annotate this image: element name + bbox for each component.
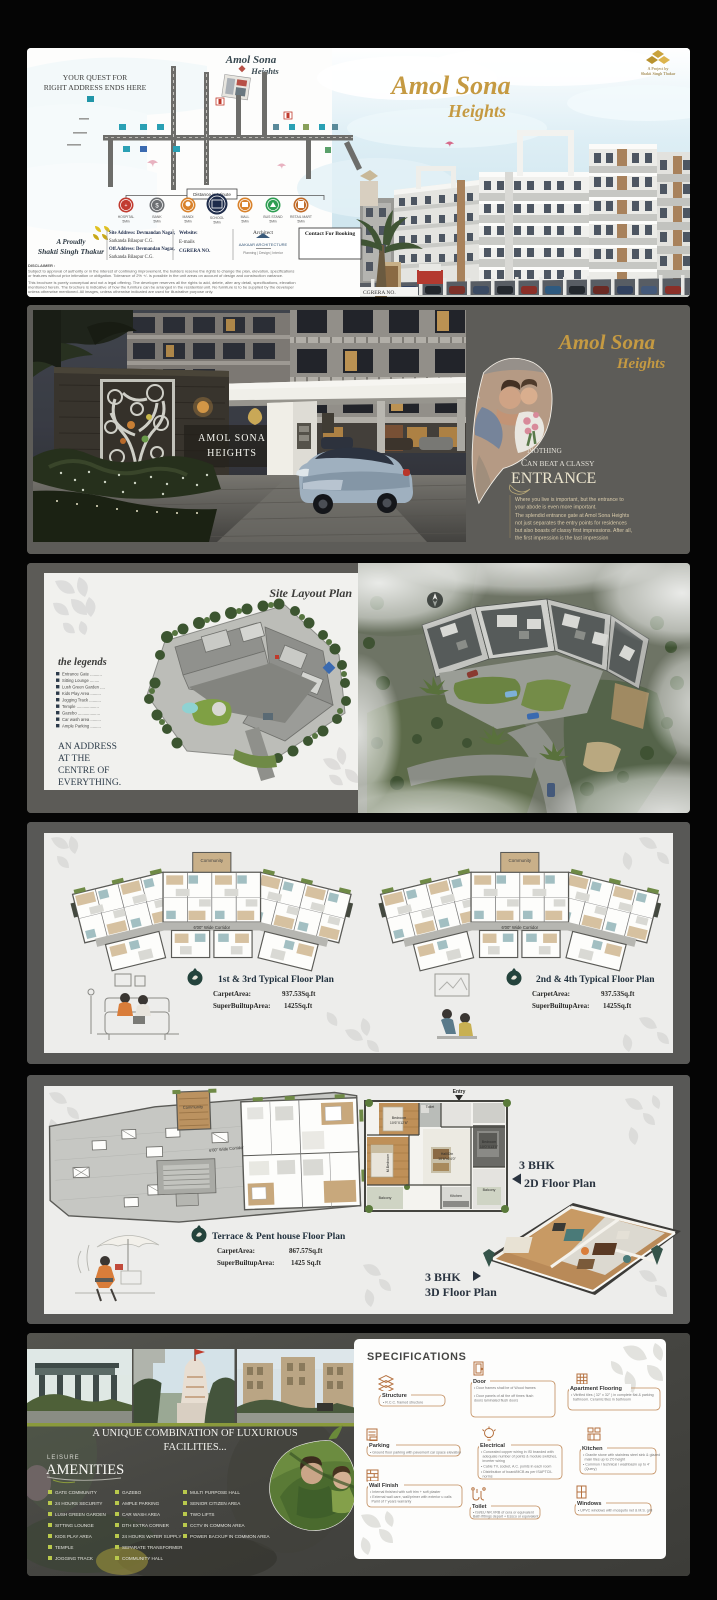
- svg-text:inverter wiring: inverter wiring: [483, 1459, 505, 1463]
- svg-text:LUSH GREEN GARDEN: LUSH GREEN GARDEN: [55, 1512, 106, 1517]
- svg-text:10'0"X13'0": 10'0"X13'0": [480, 1145, 499, 1149]
- svg-text:DTH EXTRA CORNER: DTH EXTRA CORNER: [122, 1523, 170, 1528]
- svg-text:Kitchen: Kitchen: [450, 1194, 462, 1198]
- svg-text:Sitting Lounge ........: Sitting Lounge ........: [62, 678, 99, 683]
- svg-text:• Ground floor parking with pa: • Ground floor parking with pavement car…: [370, 1451, 461, 1455]
- svg-text:Kids Play Area .........: Kids Play Area .........: [62, 691, 101, 696]
- svg-text:• R.C.C. framed structure: • R.C.C. framed structure: [383, 1401, 423, 1405]
- svg-text:24 HOURS WATER SUPPLY: 24 HOURS WATER SUPPLY: [122, 1534, 181, 1539]
- svg-text:5Min: 5Min: [297, 220, 304, 224]
- svg-text:SuperBuiltupArea:: SuperBuiltupArea:: [213, 1002, 270, 1010]
- svg-text:POWER BACKUP IN COMMON AREA: POWER BACKUP IN COMMON AREA: [190, 1534, 270, 1539]
- svg-text:• Concealed copper wiring in: • Concealed copper wiring in ISI branded…: [481, 1450, 554, 1454]
- svg-text:2D Floor Plan: 2D Floor Plan: [524, 1176, 596, 1190]
- svg-text:3 BHK: 3 BHK: [425, 1270, 461, 1284]
- svg-text:5Min: 5Min: [153, 220, 160, 224]
- svg-text:main tiles up to 2'0 height: main tiles up to 2'0 height: [585, 1458, 626, 1462]
- svg-text:(Query): (Query): [585, 1467, 597, 1471]
- svg-text:your abode is even more import: your abode is even more important.: [515, 505, 597, 511]
- svg-text:937.53Sq.ft: 937.53Sq.ft: [601, 990, 635, 998]
- svg-text:adequate number of points & mo: adequate number of points & module switc…: [483, 1455, 558, 1459]
- svg-text:10'6"x24'0": 10'6"x24'0": [438, 1157, 456, 1161]
- svg-text:Site Address: Devmandan Nagar,: Site Address: Devmandan Nagar,: [109, 231, 175, 236]
- svg-text:Car wash area .........: Car wash area .........: [62, 717, 101, 722]
- svg-text:MALL: MALL: [241, 215, 250, 219]
- svg-text:Sarkanda Bilaspur C.G.: Sarkanda Bilaspur C.G.: [109, 239, 154, 244]
- svg-text:FACILITIES...: FACILITIES...: [163, 1442, 226, 1453]
- svg-text:COMMUNITY HALL: COMMUNITY HALL: [122, 1556, 163, 1561]
- svg-text:but also boasts of classy firs: but also boasts of classy first impressi…: [515, 528, 632, 534]
- svg-text:Sarkanda Bilaspur C.G.: Sarkanda Bilaspur C.G.: [109, 255, 154, 260]
- svg-text:Site Layout Plan: Site Layout Plan: [269, 586, 352, 600]
- svg-text:3 BHK: 3 BHK: [519, 1158, 555, 1172]
- svg-text:• Door frames shall be of Wood: • Door frames shall be of Wood frames: [474, 1386, 536, 1390]
- svg-text:Entrance Gate ..........: Entrance Gate ..........: [62, 672, 102, 677]
- svg-text:AMOL SONA: AMOL SONA: [198, 433, 266, 444]
- svg-text:1st & 3rd Typical Floor Plan: 1st & 3rd Typical Floor Plan: [218, 975, 335, 985]
- svg-text:unless otherwise mentioned. Al: unless otherwise mentioned. All images, …: [28, 289, 213, 294]
- svg-text:Electrical: Electrical: [480, 1443, 505, 1449]
- svg-text:Temple ...................: Temple ...................: [62, 704, 99, 709]
- svg-text:Amol Sona: Amol Sona: [557, 330, 655, 354]
- svg-text:NOTHING: NOTHING: [527, 445, 562, 455]
- svg-text:2nd & 4th Typical Floor Plan: 2nd & 4th Typical Floor Plan: [536, 975, 655, 985]
- svg-text:• Distribution of board/MCB as: • Distribution of board/MCB as per ISAPT…: [481, 1470, 552, 1474]
- svg-text:Wall Finish: Wall Finish: [369, 1483, 399, 1489]
- svg-text:the legends: the legends: [58, 657, 107, 668]
- svg-text:Apartment Flooring: Apartment Flooring: [570, 1386, 622, 1392]
- svg-text:TWO LIFTS: TWO LIFTS: [190, 1512, 215, 1517]
- svg-text:Gazebo ...................: Gazebo ...................: [62, 711, 100, 716]
- svg-text:937.53Sq.ft: 937.53Sq.ft: [282, 990, 316, 998]
- svg-text:• Cable TV, socket, A.C. poin: • Cable TV, socket, A.C. points in each …: [481, 1465, 551, 1469]
- svg-text:YOUR QUEST FOR: YOUR QUEST FOR: [63, 73, 128, 82]
- svg-text:5Min: 5Min: [122, 220, 129, 224]
- svg-text:HEIGHTS: HEIGHTS: [207, 448, 257, 459]
- svg-text:SENIOR CITIZEN AREA: SENIOR CITIZEN AREA: [190, 1501, 241, 1506]
- svg-text:Bedroom: Bedroom: [482, 1140, 497, 1144]
- svg-text:Paint of 7 years warranty: Paint of 7 years warranty: [372, 1500, 412, 1504]
- svg-text:CAN BEAT A CLASSY: CAN BEAT A CLASSY: [521, 458, 595, 468]
- svg-text:Shakti Singh Thakur: Shakti Singh Thakur: [641, 71, 676, 76]
- svg-text:Community: Community: [183, 1104, 203, 1110]
- svg-text:Jogging Track ..........: Jogging Track ..........: [62, 698, 101, 703]
- svg-text:CarpetArea:: CarpetArea:: [532, 990, 570, 998]
- svg-text:AT THE: AT THE: [58, 754, 90, 764]
- svg-text:3D Floor Plan: 3D Floor Plan: [425, 1285, 497, 1299]
- svg-text:SITTING LOUNGE: SITTING LOUNGE: [55, 1523, 94, 1528]
- svg-text:Toilet: Toilet: [426, 1105, 434, 1109]
- svg-text:RIGHT ADDRESS ENDS HERE: RIGHT ADDRESS ENDS HERE: [44, 83, 147, 92]
- svg-text:• Common / technical / washbas: • Common / technical / washbasin up to 4…: [583, 1463, 650, 1467]
- svg-text:Bath fittings depart + Essco o: Bath fittings depart + Essco or equivale…: [473, 1515, 538, 1519]
- svg-text:JOGGING TRACK: JOGGING TRACK: [55, 1556, 94, 1561]
- svg-text:norms: norms: [483, 1475, 493, 1479]
- svg-text:CAR WASH AREA: CAR WASH AREA: [122, 1512, 161, 1517]
- svg-text:the first impression is the la: the first impression is the last impress…: [515, 536, 609, 542]
- svg-text:or features without prior inti: or features without prior intimation or …: [28, 273, 283, 278]
- svg-text:• Internal finished with soft: • Internal finished with soft trim + sof…: [370, 1490, 441, 1494]
- svg-text:Contact For Booking: Contact For Booking: [305, 231, 355, 237]
- svg-text:+: +: [125, 203, 128, 209]
- svg-text:• UPVC windows with mosquito n: • UPVC windows with mosquito net & M.S. …: [578, 1509, 653, 1513]
- svg-text:bathroom. Ceramic tiles in bat: bathroom. Ceramic tiles in bathroom: [573, 1398, 631, 1402]
- svg-text:Lush Green Garden ....: Lush Green Garden ....: [62, 685, 105, 690]
- svg-text:KIDS PLAY AREA: KIDS PLAY AREA: [55, 1534, 93, 1539]
- svg-text:RETAIL MART: RETAIL MART: [290, 215, 312, 219]
- svg-text:Balcony: Balcony: [379, 1196, 392, 1200]
- svg-text:1425Sq.ft: 1425Sq.ft: [603, 1002, 632, 1010]
- svg-text:SCHOOL: SCHOOL: [210, 216, 224, 220]
- svg-text:EVERYTHING.: EVERYTHING.: [58, 778, 121, 788]
- svg-text:Shakti Singh Thakur: Shakti Singh Thakur: [38, 247, 105, 256]
- svg-text:BUS STAND: BUS STAND: [263, 215, 283, 219]
- svg-text:Amol Sona: Amol Sona: [389, 71, 510, 100]
- svg-text:CarpetArea:: CarpetArea:: [213, 990, 251, 998]
- svg-text:Structure: Structure: [382, 1393, 407, 1399]
- svg-text:CENTRE OF: CENTRE OF: [58, 766, 109, 776]
- svg-text:DISCLAIMER :: DISCLAIMER :: [28, 263, 55, 268]
- svg-text:CarpetArea:: CarpetArea:: [217, 1247, 255, 1255]
- svg-text:SPECIFICATIONS: SPECIFICATIONS: [367, 1351, 467, 1363]
- svg-text:Balcony: Balcony: [483, 1188, 496, 1192]
- svg-text:TEMPLE: TEMPLE: [55, 1545, 73, 1550]
- svg-text:24 HOURS SECURITY: 24 HOURS SECURITY: [55, 1501, 102, 1506]
- svg-text:Website:: Website:: [179, 231, 198, 236]
- svg-text:Ample Parking .........: Ample Parking .........: [62, 724, 101, 729]
- svg-text:M.Bedroom: M.Bedroom: [386, 1154, 390, 1173]
- svg-text:E-mails: E-mails: [179, 240, 195, 245]
- svg-text:Heights: Heights: [616, 356, 666, 372]
- svg-text:GAZEBO: GAZEBO: [122, 1490, 142, 1495]
- svg-text:Kitchen: Kitchen: [582, 1446, 603, 1452]
- svg-text:CCTV IN COMMON AREA: CCTV IN COMMON AREA: [190, 1523, 246, 1528]
- svg-text:AMPLE PARKING: AMPLE PARKING: [122, 1501, 160, 1506]
- svg-text:Planning | Design | Interior: Planning | Design | Interior: [243, 251, 284, 255]
- svg-text:HOSPITAL: HOSPITAL: [118, 215, 135, 219]
- svg-text:867.57Sq.ft: 867.57Sq.ft: [289, 1247, 323, 1255]
- svg-text:CGRERA NO.: CGRERA NO.: [179, 249, 211, 254]
- svg-text:CGRERA NO.: CGRERA NO.: [363, 290, 396, 296]
- svg-text:• External wall care, wall/pri: • External wall care, wall/primer with e…: [370, 1495, 452, 1499]
- svg-text:Amol Sona: Amol Sona: [225, 54, 277, 66]
- svg-text:ENTRANCE: ENTRANCE: [511, 470, 596, 487]
- svg-text:LEISURE: LEISURE: [47, 1455, 80, 1461]
- svg-text:5Min: 5Min: [241, 220, 248, 224]
- svg-text:SEPARATE TRANSFORMER: SEPARATE TRANSFORMER: [122, 1545, 183, 1550]
- svg-text:Windows: Windows: [577, 1501, 602, 1507]
- svg-text:MANDI: MANDI: [183, 215, 194, 219]
- svg-text:A Proudly: A Proudly: [56, 238, 87, 246]
- svg-text:Where you live is important, b: Where you live is important, but the ent…: [515, 497, 624, 503]
- svg-text:Terrace & Pent house Floor Pla: Terrace & Pent house Floor Plan: [212, 1232, 346, 1242]
- svg-text:doors laminated flush doors: doors laminated flush doors: [474, 1399, 518, 1403]
- svg-text:• Door panels of all the off t: • Door panels of all the off times flush: [474, 1394, 533, 1398]
- svg-text:AMENITIES: AMENITIES: [46, 1462, 124, 1478]
- svg-text:not just separates the entry p: not just separates the entry points for …: [515, 521, 627, 527]
- svg-text:• Vitrified tiles ( 32" x 32": • Vitrified tiles ( 32" x 32" ) in compl…: [571, 1393, 654, 1397]
- svg-text:1425Sq.ft: 1425Sq.ft: [284, 1002, 313, 1010]
- svg-text:A UNIQUE COMBINATION OF LUXURI: A UNIQUE COMBINATION OF LUXURIOUS: [92, 1428, 297, 1439]
- svg-text:BANK: BANK: [152, 215, 162, 219]
- svg-text:5Min: 5Min: [213, 221, 220, 225]
- svg-text:SuperBuiltupArea:: SuperBuiltupArea:: [532, 1002, 589, 1010]
- svg-text:• Granite stone with stainless: • Granite stone with stainless steel sin…: [583, 1453, 660, 1457]
- svg-text:5Min: 5Min: [269, 220, 276, 224]
- svg-text:Toilet: Toilet: [472, 1504, 487, 1510]
- svg-text:Parking: Parking: [369, 1443, 390, 1449]
- svg-text:MULTI PURPOSE HALL: MULTI PURPOSE HALL: [190, 1490, 240, 1495]
- svg-text:Entry: Entry: [453, 1089, 466, 1095]
- svg-text:Hall/Din: Hall/Din: [441, 1152, 454, 1156]
- svg-text:Off.Address: Devmandan Nagar,: Off.Address: Devmandan Nagar,: [109, 247, 175, 252]
- svg-text:5Min: 5Min: [184, 220, 191, 224]
- svg-text:1425 Sq.ft: 1425 Sq.ft: [291, 1259, 322, 1267]
- svg-text:GATE COMMUNITY: GATE COMMUNITY: [55, 1490, 97, 1495]
- svg-text:Door: Door: [473, 1379, 487, 1385]
- svg-text:SuperBuiltupArea:: SuperBuiltupArea:: [217, 1259, 274, 1267]
- svg-text:Bedroom: Bedroom: [392, 1116, 407, 1120]
- svg-text:The splendid entrance gate at: The splendid entrance gate at Amol Sona …: [515, 513, 630, 519]
- svg-text:AN ADDRESS: AN ADDRESS: [58, 742, 117, 752]
- svg-text:10'6"X12'6": 10'6"X12'6": [390, 1121, 409, 1125]
- svg-text:Heights: Heights: [447, 101, 506, 121]
- svg-text:AAKAAR ARCHITECTURE: AAKAAR ARCHITECTURE: [239, 242, 288, 247]
